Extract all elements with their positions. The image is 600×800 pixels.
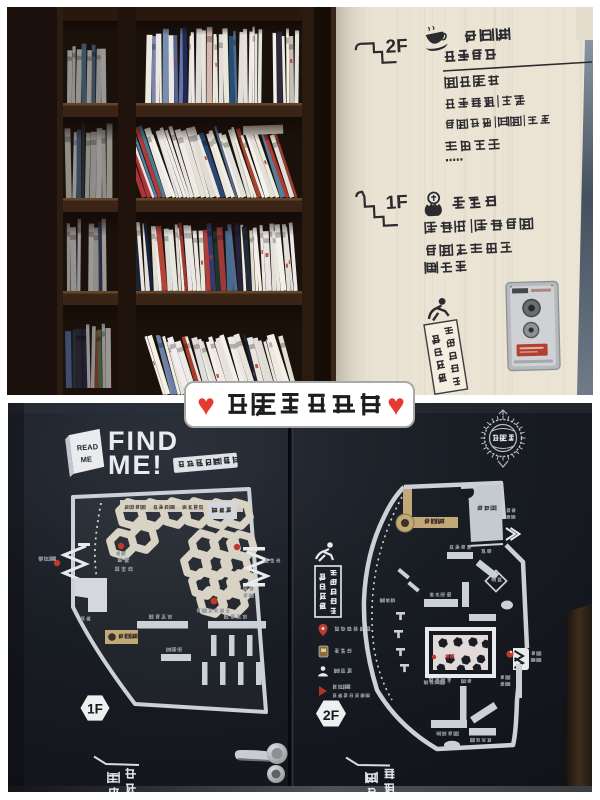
svg-text:♥: ♥ (197, 389, 215, 422)
svg-text:ME: ME (80, 455, 92, 465)
svg-text:2F: 2F (385, 36, 408, 58)
svg-text:1F: 1F (87, 702, 103, 717)
svg-text:ME!: ME! (108, 450, 164, 480)
svg-text:1F: 1F (385, 192, 408, 214)
svg-text:READ: READ (77, 442, 99, 453)
svg-text:♥: ♥ (387, 389, 405, 422)
svg-text:2F: 2F (323, 707, 340, 723)
